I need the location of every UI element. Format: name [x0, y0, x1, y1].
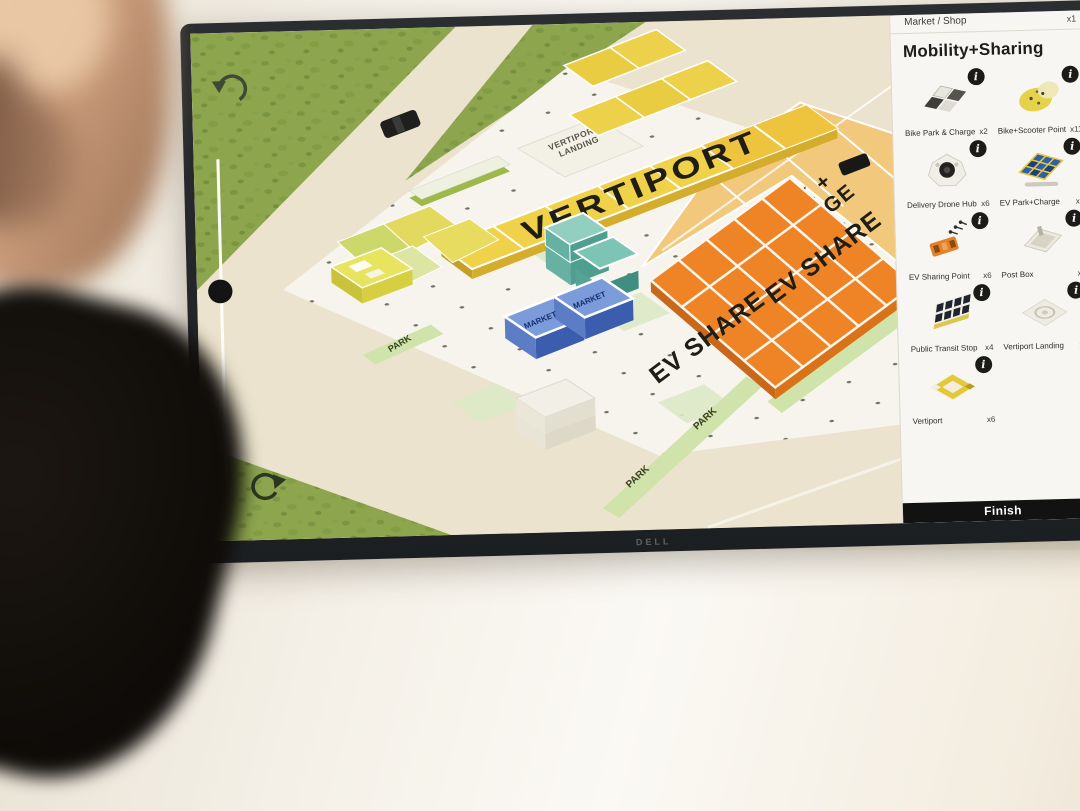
sidebar-item-ev-park-charge[interactable]: iEV Park+Chargex5 — [996, 133, 1080, 207]
sidebar-panel: Market / Shop x1 Mobility+Sharing iBike … — [889, 10, 1080, 523]
sidebar-item-public-transit-stop[interactable]: iPublic Transit Stopx4 — [907, 280, 996, 354]
category-title: Mobility+Sharing — [891, 29, 1080, 64]
info-icon[interactable]: i — [1064, 137, 1080, 154]
post-box-icon: i — [998, 213, 1080, 267]
vertiport-icon: i — [909, 360, 997, 414]
screen: PARK PARK PARK PARK PARK VERTIPORT L — [190, 10, 1080, 541]
sidebar-item-post-box[interactable]: iPost Boxx2 — [998, 205, 1080, 279]
person-hair — [0, 55, 30, 225]
finish-button[interactable]: Finish — [903, 498, 1080, 523]
sidebar-item-label: Vertiport — [913, 416, 943, 426]
sidebar-items-grid: iBike Park & Chargex2iBike+Scooter Point… — [891, 59, 1080, 503]
bike-park-charge-icon: i — [902, 72, 990, 126]
sidebar-item-count: x11 — [1070, 124, 1080, 133]
info-icon[interactable]: i — [969, 140, 986, 157]
sidebar-item-vertiport-landing[interactable]: iVertiport Landingx6 — [1000, 277, 1080, 351]
info-icon[interactable]: i — [1062, 65, 1079, 82]
sidebar-item-count: x4 — [985, 343, 994, 352]
delivery-drone-hub-icon: i — [903, 144, 991, 198]
sidebar-item-count: x1 — [1067, 13, 1077, 23]
sidebar-item-bike-scooter-point[interactable]: iBike+Scooter Pointx11 — [994, 61, 1080, 135]
ev-park-charge-icon: i — [996, 141, 1080, 195]
city-map[interactable]: PARK PARK PARK PARK PARK VERTIPORT L — [190, 15, 902, 541]
public-transit-stop-icon: i — [907, 288, 995, 342]
ev-sharing-point-icon: i — [905, 216, 993, 270]
sidebar-item-delivery-drone-hub[interactable]: iDelivery Drone Hubx6 — [903, 136, 992, 210]
sidebar-item-count: x6 — [983, 271, 992, 280]
person-face — [0, 0, 170, 290]
info-icon[interactable]: i — [971, 212, 988, 229]
sidebar-item-ev-sharing-point[interactable]: iEV Sharing Pointx6 — [905, 208, 994, 282]
person-face-highlight — [0, 0, 110, 95]
person-face-shadow — [0, 95, 70, 225]
info-icon[interactable]: i — [1067, 281, 1080, 298]
sidebar-item-count: x6 — [987, 415, 996, 424]
info-icon[interactable]: i — [973, 284, 990, 301]
sidebar-item-count: x6 — [981, 199, 990, 208]
sidebar-item-label: Market / Shop — [904, 15, 967, 28]
monitor-brand-logo: DELL — [636, 536, 672, 547]
vertiport-landing-icon: i — [1000, 285, 1080, 339]
sidebar-item-label: Vertiport Landing — [1003, 341, 1064, 352]
bike-scooter-point-icon: i — [994, 69, 1080, 123]
map-canvas[interactable]: PARK PARK PARK PARK PARK VERTIPORT L — [190, 15, 902, 541]
sidebar-item-count: x2 — [979, 127, 988, 136]
info-icon[interactable]: i — [1065, 209, 1080, 226]
sidebar-item-count: x5 — [1076, 196, 1080, 205]
info-icon[interactable]: i — [975, 356, 992, 373]
monitor: PARK PARK PARK PARK PARK VERTIPORT L — [180, 0, 1080, 564]
sidebar-item-bike-park-charge[interactable]: iBike Park & Chargex2 — [901, 64, 990, 138]
sidebar-item-vertiport[interactable]: iVertiportx6 — [909, 352, 998, 426]
info-icon[interactable]: i — [967, 68, 984, 85]
